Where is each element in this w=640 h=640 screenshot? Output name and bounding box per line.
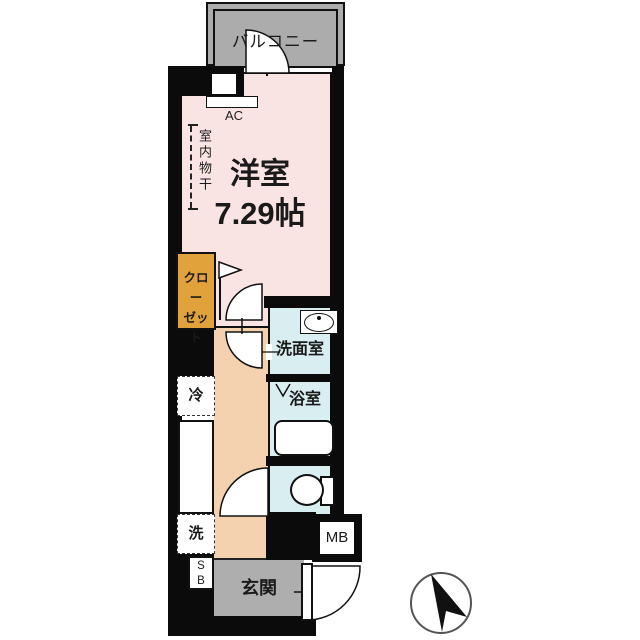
room-door-arc-lower — [226, 332, 262, 368]
shoe-box-label-s: S — [190, 559, 212, 574]
bathroom-label: 浴室 — [280, 390, 330, 410]
room-door-arc-upper — [226, 284, 262, 320]
ac-unit — [206, 96, 258, 108]
drying-pole-cap-top — [188, 124, 198, 126]
toilet-bowl — [290, 474, 324, 506]
floor-plan: MB S B — [0, 0, 640, 640]
closet-door-pivot — [219, 262, 241, 278]
toilet-door-arc — [220, 468, 268, 516]
meter-box-label: MB — [326, 529, 349, 546]
entrance-label: 玄関 — [214, 576, 304, 600]
main-room-name: 洋室 — [190, 158, 330, 193]
closet-label-line2: ゼット — [178, 308, 214, 348]
shoe-box: S B — [188, 556, 214, 590]
washbasin-faucet — [317, 316, 321, 320]
closet-label-line1: クロー — [178, 268, 214, 308]
shoe-box-label-b: B — [190, 574, 212, 589]
main-room-size: 7.29帖 — [190, 196, 330, 232]
meter-box: MB — [320, 522, 354, 554]
refrigerator-label: 冷 — [177, 376, 215, 416]
entrance-door-arc — [307, 566, 360, 620]
main-room-label: 洋室 7.29帖 — [190, 158, 330, 231]
closet-label: クロー ゼット — [178, 268, 214, 348]
washer-label: 洗 — [177, 514, 215, 554]
ac-label: AC — [214, 108, 254, 124]
kitchen-counter — [178, 420, 214, 514]
bathtub — [274, 420, 334, 456]
washroom-label: 洗面室 — [268, 340, 332, 360]
balcony-label: バルコニー — [213, 30, 338, 54]
